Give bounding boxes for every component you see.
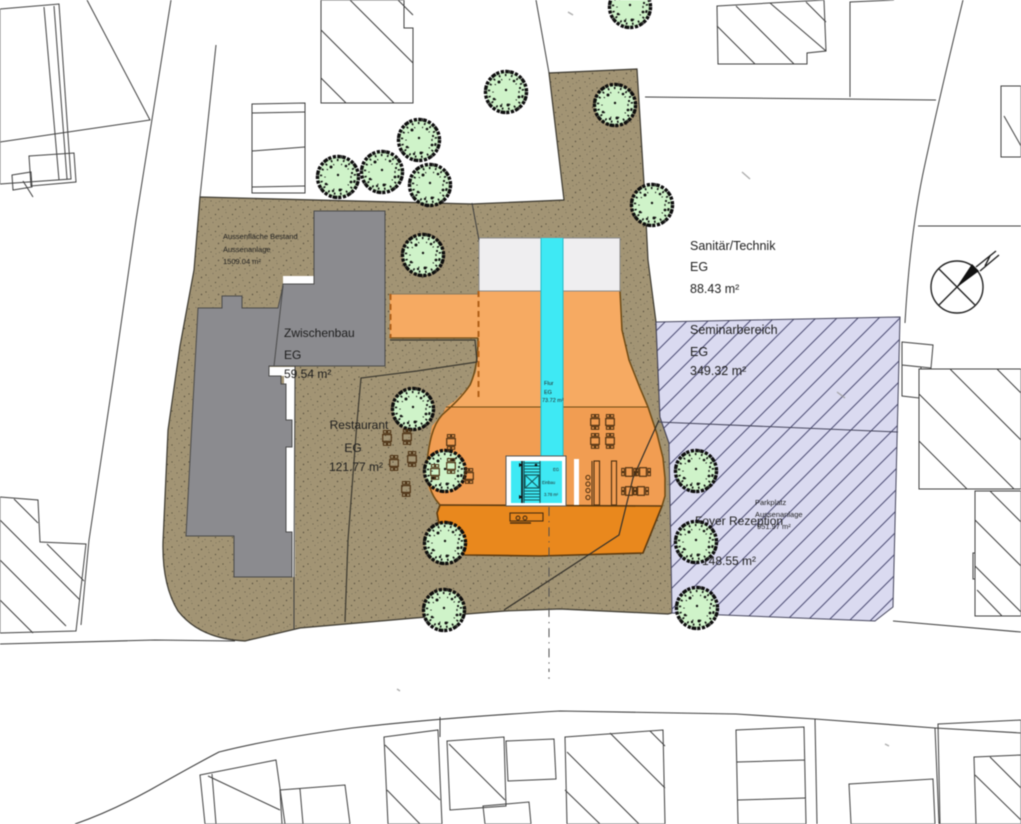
svg-text:349.32 m²: 349.32 m²	[690, 364, 746, 378]
svg-text:Parkplatz: Parkplatz	[755, 498, 787, 507]
svg-text:121.77 m²: 121.77 m²	[329, 460, 383, 474]
svg-text:Einbau: Einbau	[542, 480, 556, 485]
svg-text:EG: EG	[284, 348, 301, 362]
svg-text:EG: EG	[344, 441, 361, 455]
svg-text:EG: EG	[553, 467, 559, 472]
svg-text:EG: EG	[690, 345, 708, 359]
svg-text:Flur: Flur	[544, 381, 554, 387]
svg-text:1509.04 m²: 1509.04 m²	[223, 257, 261, 266]
svg-text:59.54 m²: 59.54 m²	[284, 367, 331, 381]
svg-text:Seminarbereich: Seminarbereich	[690, 323, 778, 337]
svg-text:73.72 m²: 73.72 m²	[542, 398, 564, 404]
svg-text:Zwischenbau: Zwischenbau	[284, 326, 355, 340]
svg-text:EG: EG	[690, 260, 708, 274]
svg-text:951.97 m²: 951.97 m²	[757, 522, 791, 531]
svg-text:Aussenanlage: Aussenanlage	[755, 510, 803, 519]
svg-text:Sanitär/Technik: Sanitär/Technik	[690, 239, 776, 253]
svg-text:88.43 m²: 88.43 m²	[690, 282, 739, 296]
svg-text:Aussenfläche Bestand: Aussenfläche Bestand	[223, 232, 298, 241]
svg-text:Aussenanlage: Aussenanlage	[223, 245, 271, 254]
svg-text:Restaurant: Restaurant	[330, 418, 389, 432]
svg-text:3.78 m²: 3.78 m²	[544, 492, 559, 497]
svg-text:EG: EG	[544, 390, 552, 396]
